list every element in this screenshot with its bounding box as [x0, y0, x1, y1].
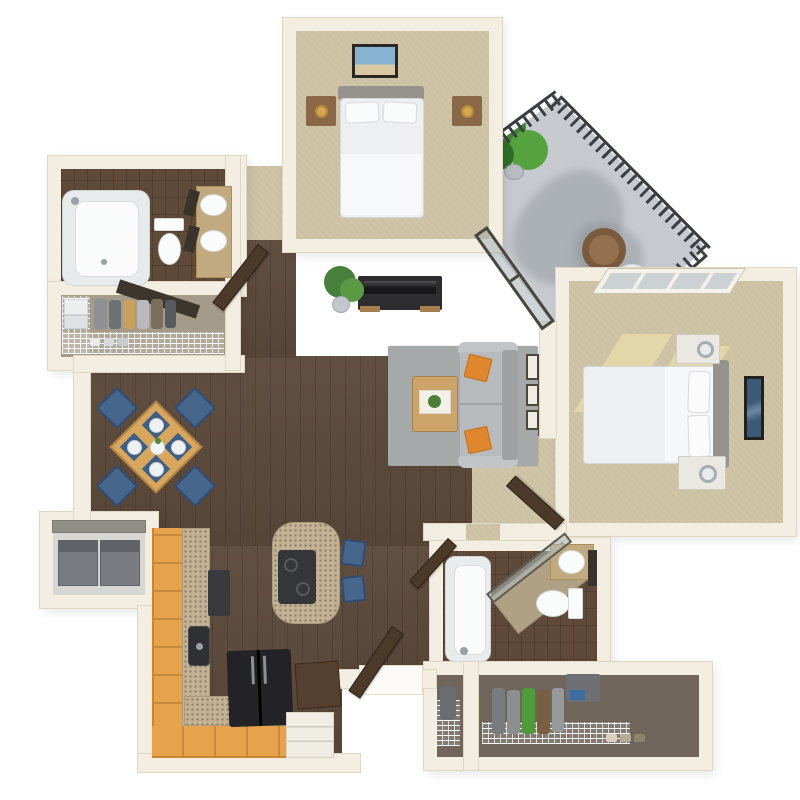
living-plant-pot	[332, 296, 350, 313]
entry-console-top	[294, 661, 341, 710]
toilet-2-tank	[568, 588, 583, 619]
shoes	[118, 338, 128, 346]
plate	[127, 440, 142, 455]
silver-lamp	[699, 465, 717, 483]
hanging-clothes	[151, 299, 163, 329]
wicker-table	[582, 228, 626, 272]
bedroom2-pillow	[687, 415, 710, 458]
closet2-divider-wall	[464, 662, 478, 770]
plate	[149, 462, 164, 477]
wall-frame	[526, 410, 539, 430]
balcony-plant-pot	[504, 164, 524, 180]
kitchen-cabinet-run-vertical	[152, 528, 182, 758]
dryer-control-band	[101, 541, 139, 552]
sofa-backrest	[502, 350, 518, 460]
bedroom2-window	[592, 268, 746, 294]
table-lamp-gold	[315, 105, 328, 118]
bedroom1-pillow	[344, 101, 379, 124]
centerpiece-greenery	[155, 438, 161, 444]
table-lamp-gold	[461, 105, 474, 118]
bedroom1-pillow	[382, 101, 417, 124]
bath2-door-opening	[466, 524, 500, 540]
plate	[171, 440, 186, 455]
bedroom1-nightstand-right	[452, 96, 482, 126]
toilet-1-bowl	[158, 233, 181, 265]
bar-stool	[341, 575, 367, 603]
sliding-door-divider	[510, 274, 520, 282]
bedroom2-pillow	[687, 371, 710, 414]
sink-1a	[200, 194, 227, 216]
faucet	[196, 643, 203, 650]
folded-towels	[64, 315, 88, 329]
tv-console-foot	[360, 306, 380, 312]
coffee-table-plant	[428, 395, 441, 408]
dryer	[100, 540, 140, 586]
tv-console-foot	[420, 306, 440, 312]
folded-blue-item	[570, 690, 585, 700]
floor-plan-render	[0, 0, 800, 800]
entry-console-shelf-cabinet	[286, 712, 334, 758]
bedroom2-nightstand-bottom	[678, 456, 726, 490]
toilet-2-bowl	[536, 590, 570, 617]
burner	[296, 582, 310, 596]
washer	[58, 540, 98, 586]
wall-left	[74, 356, 90, 528]
bathtub-1	[62, 190, 150, 286]
wall-top-left	[74, 356, 244, 372]
plate	[149, 418, 164, 433]
hanging-clothes	[522, 688, 535, 734]
bathtub-drain	[101, 259, 107, 265]
closet1-wire-rack-bottom	[62, 332, 224, 354]
bedroom2-nightstand-top	[676, 334, 720, 364]
bathtub-2-basin	[454, 565, 486, 655]
refrigerator-handle	[263, 656, 267, 684]
hanging-clothes	[507, 690, 520, 734]
wall-frame	[526, 354, 539, 380]
bedroom1-duvet-fold	[341, 154, 421, 215]
refrigerator-door-split	[257, 650, 263, 726]
refrigerator	[227, 649, 294, 727]
bathtub-1-basin	[75, 201, 139, 277]
hanging-clothes	[552, 688, 564, 732]
sink-1b	[200, 230, 227, 252]
bedroom2-wall-art	[744, 376, 764, 440]
burner	[284, 558, 298, 572]
accent-pillow	[464, 426, 492, 454]
laundry-counter	[52, 520, 146, 533]
wall-entry-right	[420, 670, 436, 688]
tv-screen	[364, 281, 436, 294]
wall-oven	[208, 570, 230, 616]
mirror-2	[588, 550, 597, 586]
shoes	[104, 338, 114, 346]
hanging-clothes	[94, 299, 107, 329]
bedroom1-nightstand-left	[306, 96, 336, 126]
shower-head	[71, 197, 79, 205]
wall-frame	[526, 384, 539, 406]
hanging-clothes	[123, 300, 135, 329]
shoes	[620, 734, 631, 742]
bedroom1-wall-art	[352, 44, 398, 78]
bathtub-2	[445, 556, 491, 662]
hanging-clothes	[492, 688, 505, 734]
hanging-clothes	[537, 690, 550, 734]
sink-2	[558, 550, 585, 574]
toilet-1-tank	[154, 218, 184, 231]
hanging-clothes	[440, 686, 456, 720]
shoes	[634, 734, 645, 742]
kitchen-cabinet-run-bottom	[152, 726, 294, 758]
hanging-clothes	[137, 300, 149, 329]
shoes	[606, 734, 617, 742]
refrigerator-handle	[251, 656, 255, 684]
kitchen-sink	[188, 626, 210, 666]
hanging-clothes	[165, 300, 176, 328]
wall-living-right	[540, 322, 556, 438]
bathtub-2-faucet	[460, 647, 468, 655]
island-cooktop	[278, 550, 316, 604]
hanging-clothes	[109, 300, 121, 329]
folded-towels	[64, 299, 88, 315]
bar-stool	[340, 539, 366, 568]
bedroom2-headboard	[713, 360, 729, 468]
shoes	[90, 338, 100, 346]
washer-control-band	[59, 541, 97, 552]
silver-lamp	[697, 341, 714, 358]
